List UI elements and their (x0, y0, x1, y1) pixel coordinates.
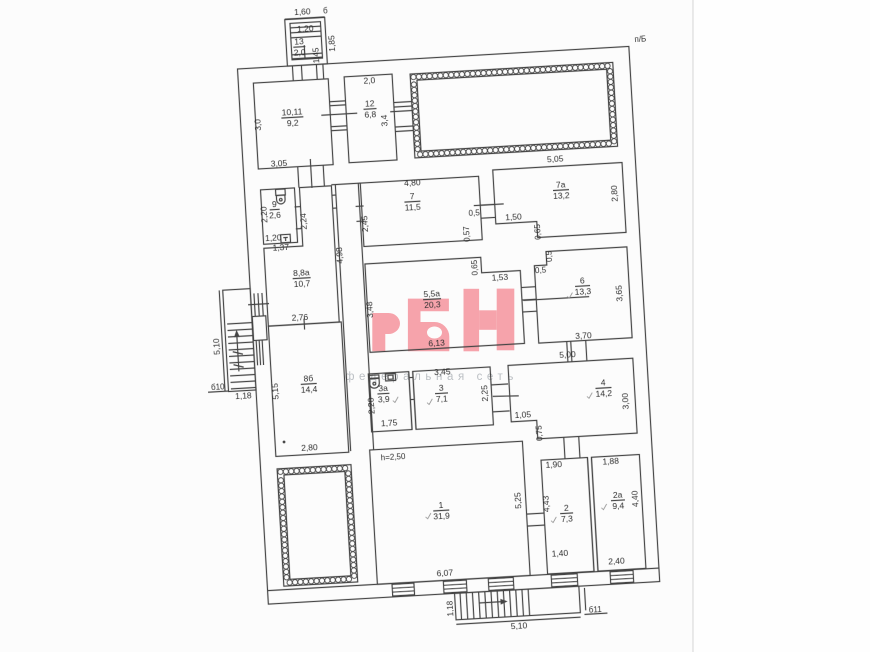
svg-text:1,18: 1,18 (235, 390, 252, 401)
svg-text:п/Б: п/Б (634, 34, 646, 44)
svg-text:3,00: 3,00 (620, 392, 631, 409)
svg-text:3,0: 3,0 (252, 118, 263, 131)
svg-text:3а: 3а (378, 383, 388, 394)
svg-text:6,13: 6,13 (428, 338, 445, 349)
svg-text:2,40: 2,40 (608, 556, 625, 567)
svg-text:1,53: 1,53 (491, 272, 508, 283)
svg-text:13: 13 (294, 36, 304, 47)
svg-text:4,80: 4,80 (404, 177, 421, 188)
svg-text:2,45: 2,45 (359, 215, 370, 232)
svg-text:0,5: 0,5 (544, 250, 554, 262)
svg-text:1,85: 1,85 (326, 35, 337, 52)
svg-text:2,80: 2,80 (609, 185, 620, 202)
svg-text:федеральная сеть: федеральная сеть (345, 371, 518, 383)
svg-text:14,4: 14,4 (301, 384, 318, 395)
svg-text:2,80: 2,80 (301, 442, 318, 453)
svg-text:8б: 8б (303, 373, 313, 384)
svg-text:1,50: 1,50 (505, 211, 522, 222)
svg-text:7,3: 7,3 (561, 513, 574, 524)
svg-text:7,1: 7,1 (436, 393, 449, 404)
svg-text:1,90: 1,90 (545, 459, 562, 470)
svg-text:5,25: 5,25 (512, 492, 523, 509)
svg-text:13,3: 13,3 (574, 286, 591, 297)
svg-text:0,75: 0,75 (534, 425, 544, 442)
svg-text:5,15: 5,15 (270, 383, 281, 400)
svg-text:б10: б10 (211, 382, 226, 392)
svg-text:3,45: 3,45 (434, 366, 451, 377)
svg-text:5,05: 5,05 (547, 153, 564, 164)
svg-text:2,25: 2,25 (479, 384, 490, 401)
svg-text:0,65: 0,65 (470, 259, 480, 276)
svg-text:2,0: 2,0 (293, 47, 306, 58)
svg-text:6,8: 6,8 (364, 109, 377, 120)
svg-text:9: 9 (272, 199, 278, 209)
svg-text:2,76: 2,76 (291, 312, 308, 323)
svg-text:3,70: 3,70 (575, 330, 592, 341)
svg-text:4,98: 4,98 (334, 247, 345, 264)
svg-text:6: 6 (580, 275, 586, 285)
svg-text:9,2: 9,2 (287, 118, 300, 129)
svg-text:3: 3 (439, 383, 445, 393)
svg-text:2,0: 2,0 (363, 75, 376, 86)
svg-text:5,10: 5,10 (510, 620, 527, 631)
svg-text:3,48: 3,48 (364, 301, 375, 318)
svg-text:9,4: 9,4 (612, 500, 625, 511)
svg-text:11,5: 11,5 (405, 202, 422, 213)
svg-text:20,3: 20,3 (424, 299, 441, 310)
svg-text:0,57: 0,57 (462, 225, 472, 242)
svg-text:31,9: 31,9 (433, 511, 450, 522)
svg-text:1,20: 1,20 (297, 23, 314, 34)
svg-text:8,8а: 8,8а (293, 267, 310, 278)
svg-text:1,45: 1,45 (311, 47, 321, 64)
svg-text:5,5а: 5,5а (423, 288, 440, 299)
svg-text:0,5: 0,5 (468, 208, 480, 218)
svg-text:7: 7 (409, 191, 415, 201)
svg-text:1,75: 1,75 (381, 417, 398, 428)
svg-text:5,00: 5,00 (559, 349, 576, 360)
svg-text:12: 12 (365, 98, 375, 109)
svg-text:5,10: 5,10 (211, 338, 222, 355)
svg-text:0,65: 0,65 (533, 223, 543, 240)
svg-text:6,07: 6,07 (436, 567, 453, 578)
svg-text:4,43: 4,43 (541, 495, 552, 512)
svg-text:2,20: 2,20 (258, 206, 269, 223)
svg-text:3,65: 3,65 (614, 285, 625, 302)
svg-text:1,18: 1,18 (445, 600, 455, 617)
svg-text:1: 1 (438, 500, 444, 510)
svg-text:3,4: 3,4 (379, 114, 390, 127)
svg-text:3,9: 3,9 (378, 394, 391, 405)
svg-text:2,24: 2,24 (298, 213, 309, 230)
svg-text:2а: 2а (613, 490, 623, 501)
svg-text:1,60: 1,60 (294, 6, 311, 17)
svg-text:2,20: 2,20 (366, 397, 377, 414)
svg-text:4: 4 (600, 377, 606, 387)
svg-text:1,05: 1,05 (514, 409, 531, 420)
svg-text:4,40: 4,40 (629, 490, 640, 507)
svg-text:h=2,50: h=2,50 (381, 452, 407, 462)
svg-text:1,88: 1,88 (602, 456, 619, 467)
svg-text:10,7: 10,7 (293, 278, 310, 289)
svg-text:14,2: 14,2 (595, 388, 612, 399)
svg-text:7а: 7а (556, 179, 566, 190)
svg-text:2,6: 2,6 (269, 210, 282, 221)
svg-text:0,5: 0,5 (535, 266, 547, 276)
svg-text:13,2: 13,2 (553, 190, 570, 201)
svg-text:2: 2 (564, 503, 570, 513)
svg-text:1,40: 1,40 (551, 548, 568, 559)
svg-text:3,05: 3,05 (270, 158, 287, 169)
svg-text:10,11: 10,11 (281, 106, 302, 117)
